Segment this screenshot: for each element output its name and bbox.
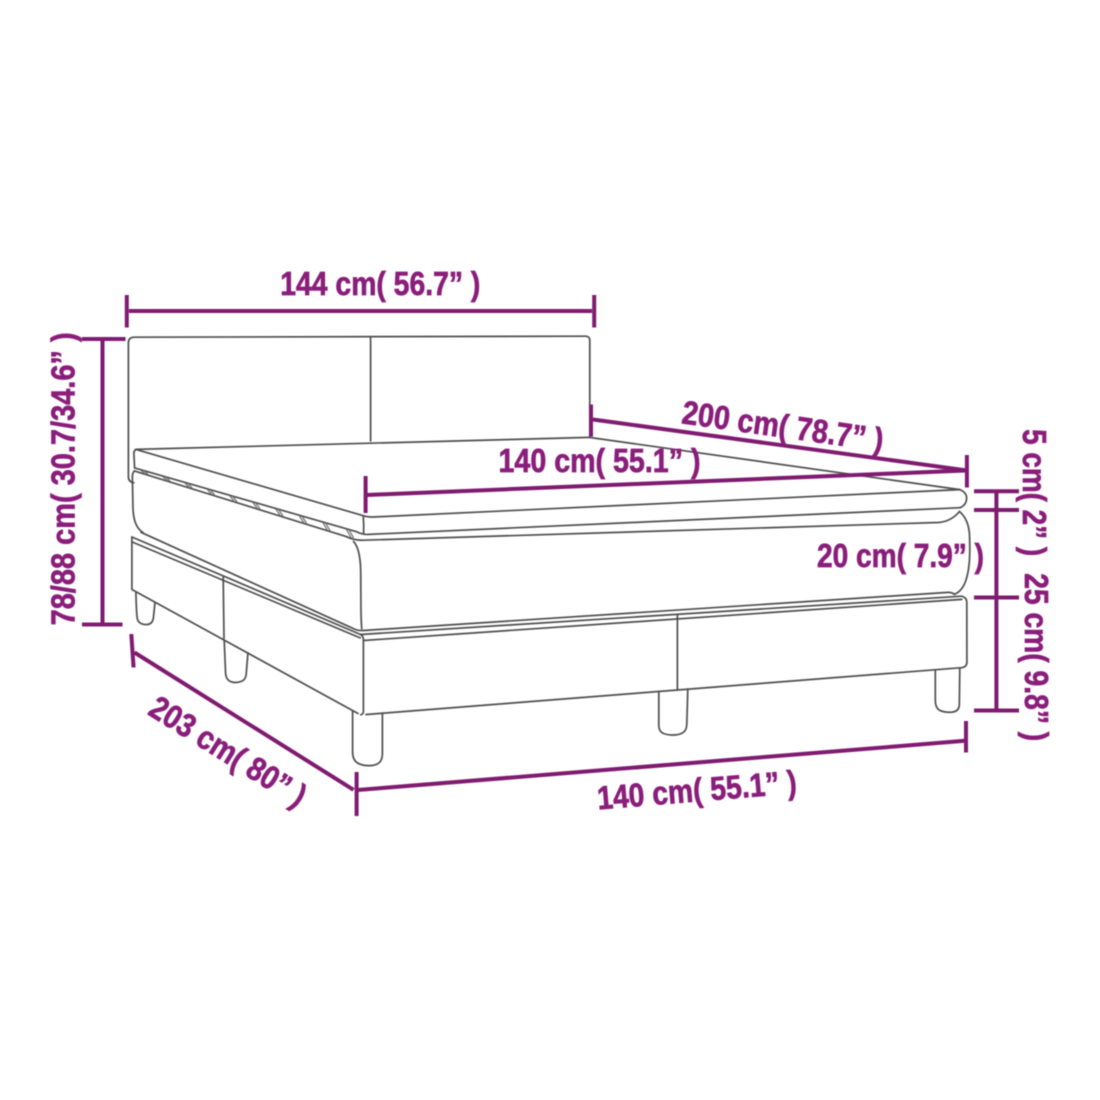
svg-text:78/88 cm( 30.7/34.6” ): 78/88 cm( 30.7/34.6” ) [45,332,82,625]
svg-text:20 cm( 7.9” ): 20 cm( 7.9” ) [817,537,984,574]
svg-text:5 cm( 2” ): 5 cm( 2” ) [1016,429,1053,556]
svg-text:140 cm( 55.1” ): 140 cm( 55.1” ) [499,442,701,479]
svg-text:144 cm( 56.7” ): 144 cm( 56.7” ) [280,265,480,302]
svg-text:25 cm( 9.8” ): 25 cm( 9.8” ) [1018,573,1055,741]
